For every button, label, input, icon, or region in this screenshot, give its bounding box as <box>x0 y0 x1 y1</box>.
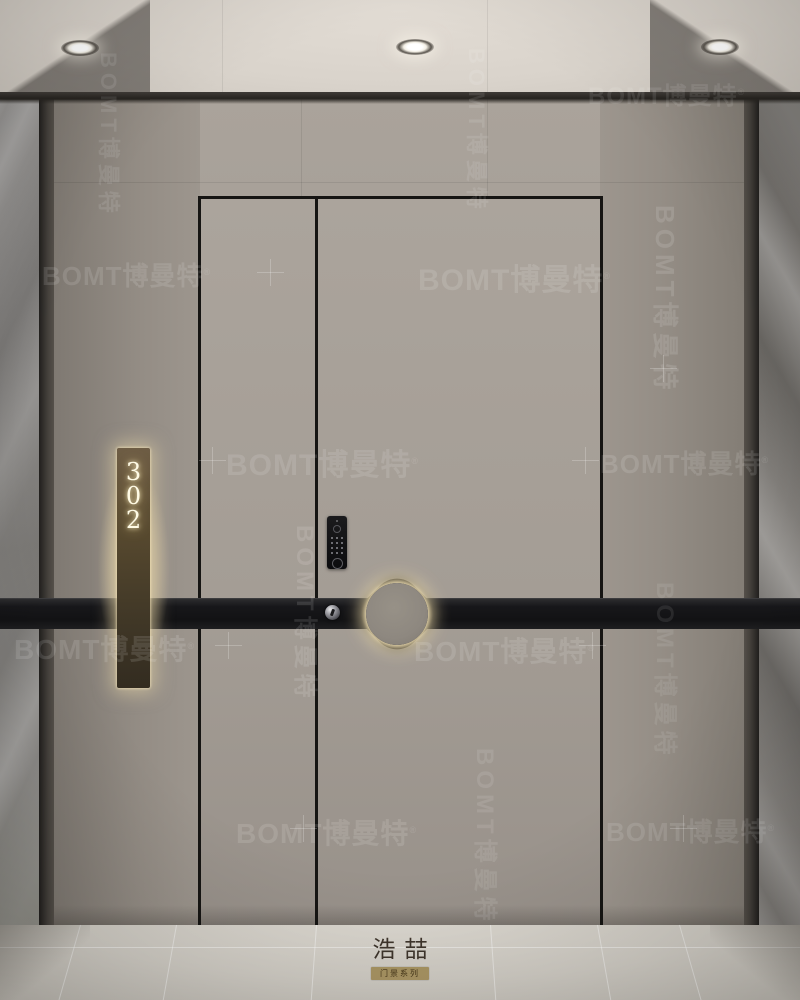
floor-corner-shadow-left <box>0 925 90 1000</box>
wall-seam-horizontal <box>54 182 746 183</box>
door-surface <box>200 198 600 925</box>
keypad-sensor-circle <box>333 525 341 533</box>
floor-corner-shadow-right <box>710 925 800 1000</box>
brand-logo-text: 浩喆 <box>300 930 500 964</box>
room-number-digit: 2 <box>126 508 141 532</box>
wall-panel-right <box>600 97 746 930</box>
keypad-fingerprint-ring <box>332 558 343 569</box>
door-lobby-render: 3 0 2 BOMT博曼特 BOMT博曼特 BOMT博曼特® BOMT博曼特® … <box>0 0 800 1000</box>
wall-base-shadow <box>0 905 800 927</box>
brand-mark: 浩喆 门景系列 <box>300 930 500 980</box>
marble-wall-right <box>756 62 800 944</box>
room-number-sign: 3 0 2 <box>117 448 150 688</box>
door-handle-ring <box>366 583 428 645</box>
room-number-digit: 0 <box>126 484 141 508</box>
door-frame-left <box>198 196 201 925</box>
door-frame-top <box>198 196 603 199</box>
brand-series-badge: 门景系列 <box>371 967 429 980</box>
wall-seam-vertical <box>487 99 488 196</box>
door-frame-right <box>600 196 603 925</box>
wall-reveal-right <box>744 90 759 952</box>
door-leaf-seam <box>315 196 318 925</box>
ceiling-seam <box>222 0 223 95</box>
downlight-icon <box>61 40 99 56</box>
smart-lock-keypad <box>327 516 347 569</box>
marble-wall-left <box>0 62 40 944</box>
wall-seam-vertical <box>301 99 302 196</box>
ceiling-seam <box>487 0 488 95</box>
downlight-icon <box>701 39 739 55</box>
room-number-digit: 3 <box>126 460 141 484</box>
keypad-buttons <box>330 536 344 555</box>
ceiling-recess-shadow <box>0 92 800 104</box>
keypad-camera-dot <box>336 520 338 522</box>
downlight-icon <box>396 39 434 55</box>
wall-reveal-left <box>39 90 54 952</box>
